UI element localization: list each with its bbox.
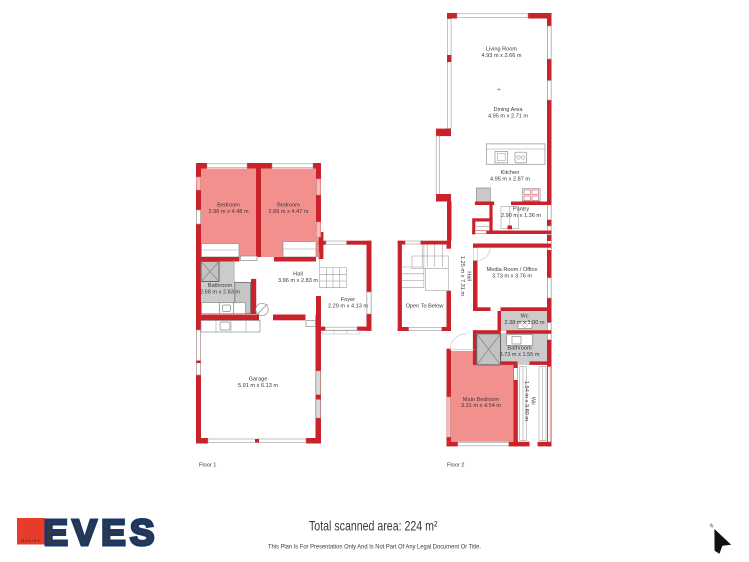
svg-text:Bathroom: Bathroom xyxy=(208,283,233,289)
svg-text:Foyer: Foyer xyxy=(341,297,355,303)
svg-text:3.31 m x 4.54 m: 3.31 m x 4.54 m xyxy=(461,403,501,409)
svg-text:Floor 1: Floor 1 xyxy=(199,463,216,469)
svg-text:2.89 m x 4.47 m: 2.89 m x 4.47 m xyxy=(268,209,308,215)
svg-text:MAKING: MAKING xyxy=(21,539,41,543)
svg-text:2.38 m x 1.00 m: 2.38 m x 1.00 m xyxy=(504,320,544,326)
svg-text:4.93 m x 2.66 m: 4.93 m x 2.66 m xyxy=(481,53,521,59)
svg-text:2.68 m x 2.83 m: 2.68 m x 2.83 m xyxy=(200,290,240,296)
svg-text:Bedroom: Bedroom xyxy=(217,203,240,209)
svg-text:Total scanned area: 224 m²: Total scanned area: 224 m² xyxy=(309,519,438,534)
svg-text:Kitchen: Kitchen xyxy=(501,170,520,176)
svg-text:Open To Below: Open To Below xyxy=(406,304,445,310)
svg-text:Dining Area: Dining Area xyxy=(494,107,524,113)
svg-text:Living Room: Living Room xyxy=(486,47,517,53)
svg-text:2.96 m x 4.48 m: 2.96 m x 4.48 m xyxy=(208,209,248,215)
svg-text:Bathroom: Bathroom xyxy=(507,346,532,352)
svg-text:Main Bedroom: Main Bedroom xyxy=(463,397,500,403)
svg-text:4.95 m x 2.71 m: 4.95 m x 2.71 m xyxy=(488,114,528,120)
svg-text:Media Room / Office: Media Room / Office xyxy=(487,267,538,273)
svg-text:Bedroom: Bedroom xyxy=(277,203,300,209)
svg-text:3.73 m x 3.76 m: 3.73 m x 3.76 m xyxy=(492,274,532,280)
svg-text:2.29 m x 4.13 m: 2.29 m x 4.13 m xyxy=(328,304,368,310)
svg-text:This Plan Is For Presentation: This Plan Is For Presentation Only And I… xyxy=(268,544,481,551)
svg-text:3.96 m x 2.83 m: 3.96 m x 2.83 m xyxy=(278,278,318,284)
svg-text:Garage: Garage xyxy=(249,377,268,383)
svg-text:3.73 m x 1.55 m: 3.73 m x 1.55 m xyxy=(499,352,539,358)
svg-text:2.90 m x 1.36 m: 2.90 m x 1.36 m xyxy=(501,213,541,219)
svg-text:Pantry: Pantry xyxy=(513,207,529,213)
svg-text:EVES: EVES xyxy=(44,512,159,553)
svg-text:Wc: Wc xyxy=(520,314,528,320)
svg-text:Hall: Hall xyxy=(293,272,303,278)
svg-text:Floor 2: Floor 2 xyxy=(447,463,464,469)
svg-text:5.91 m x 6.13 m: 5.91 m x 6.13 m xyxy=(238,383,278,389)
svg-text:4.95 m x 2.87 m: 4.95 m x 2.87 m xyxy=(490,177,530,183)
